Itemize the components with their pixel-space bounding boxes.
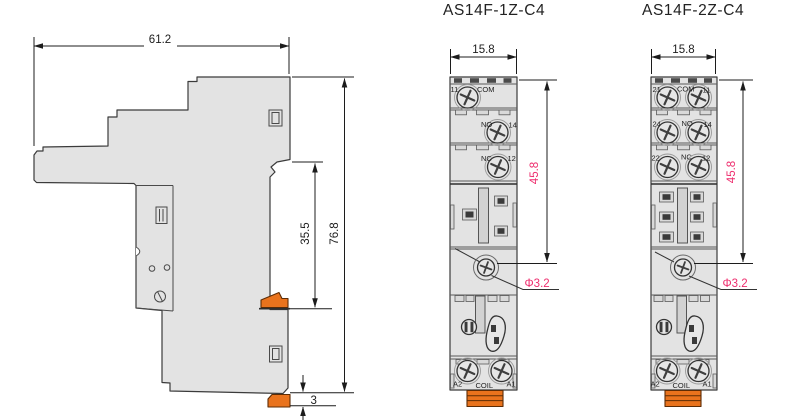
terminal-label-24: 24 bbox=[653, 120, 661, 129]
terminal-label-coil: COIL bbox=[673, 381, 691, 390]
front-view-1z: 11 COM NO 14 NC 12 bbox=[450, 44, 559, 407]
terminal-label-21: 21 bbox=[653, 85, 661, 94]
side-profile bbox=[34, 77, 290, 394]
terminal-label-12: 12 bbox=[508, 154, 516, 163]
dim-side-total-height: 76.8 bbox=[329, 222, 341, 244]
terminal-label-11: 11 bbox=[451, 85, 459, 94]
screw-terminal-icon bbox=[491, 361, 512, 382]
screw-terminal-icon bbox=[457, 361, 478, 382]
din-clip-front bbox=[467, 391, 503, 407]
terminal-label-a1: A1 bbox=[703, 380, 712, 389]
terminal-label-11: 11 bbox=[703, 86, 711, 95]
dim-1z-height: 45.8 bbox=[529, 162, 541, 184]
din-clip-front bbox=[665, 391, 701, 407]
terminal-label-coil: COIL bbox=[476, 381, 494, 390]
dim-side-width: 61.2 bbox=[149, 34, 171, 46]
release-keyhole bbox=[462, 320, 477, 335]
terminal-label-no: NO bbox=[481, 120, 492, 129]
terminal-label-12: 12 bbox=[702, 154, 710, 163]
dimension-drawing: AS14F-1Z-C4 AS14F-2Z-C4 bbox=[0, 0, 800, 420]
screw-terminal-icon bbox=[688, 361, 709, 382]
terminal-label-com: COM bbox=[677, 85, 695, 94]
terminal-label-a2: A2 bbox=[453, 380, 462, 389]
dim-side-rail-height: 35.5 bbox=[300, 222, 312, 244]
drawing-canvas: 61.2 76.8 35.5 3 bbox=[0, 0, 800, 420]
dim-2z-width: 15.8 bbox=[672, 44, 694, 56]
front-view-2z: 21 COM 11 24 NO 14 22 NC 12 bbox=[651, 44, 758, 407]
terminal-label-22: 22 bbox=[652, 154, 660, 163]
side-view: 61.2 76.8 35.5 3 bbox=[34, 34, 354, 420]
release-keyhole bbox=[657, 320, 672, 335]
screw-terminal-icon bbox=[457, 87, 478, 108]
dim-2z-hole: Φ3.2 bbox=[723, 278, 748, 290]
mounting-hole bbox=[671, 255, 696, 280]
terminal-label-a2: A2 bbox=[651, 380, 660, 389]
terminal-label-14: 14 bbox=[704, 120, 712, 129]
din-clip-bottom bbox=[268, 395, 290, 408]
screw-terminal-icon bbox=[657, 157, 678, 178]
dim-side-clip-depth: 3 bbox=[311, 395, 317, 407]
terminal-label-14: 14 bbox=[509, 121, 517, 130]
dim-1z-hole: Φ3.2 bbox=[525, 278, 550, 290]
terminal-label-a1: A1 bbox=[507, 380, 516, 389]
terminal-label-nc: NC bbox=[481, 154, 492, 163]
terminal-label-nc: NC bbox=[681, 153, 692, 162]
mounting-hole bbox=[474, 255, 499, 280]
dim-1z-width: 15.8 bbox=[472, 44, 494, 56]
dim-2z-height: 45.8 bbox=[726, 161, 738, 183]
terminal-label-com: COM bbox=[477, 85, 495, 94]
terminal-label-no: NO bbox=[682, 119, 693, 128]
screw-terminal-icon bbox=[657, 361, 678, 382]
